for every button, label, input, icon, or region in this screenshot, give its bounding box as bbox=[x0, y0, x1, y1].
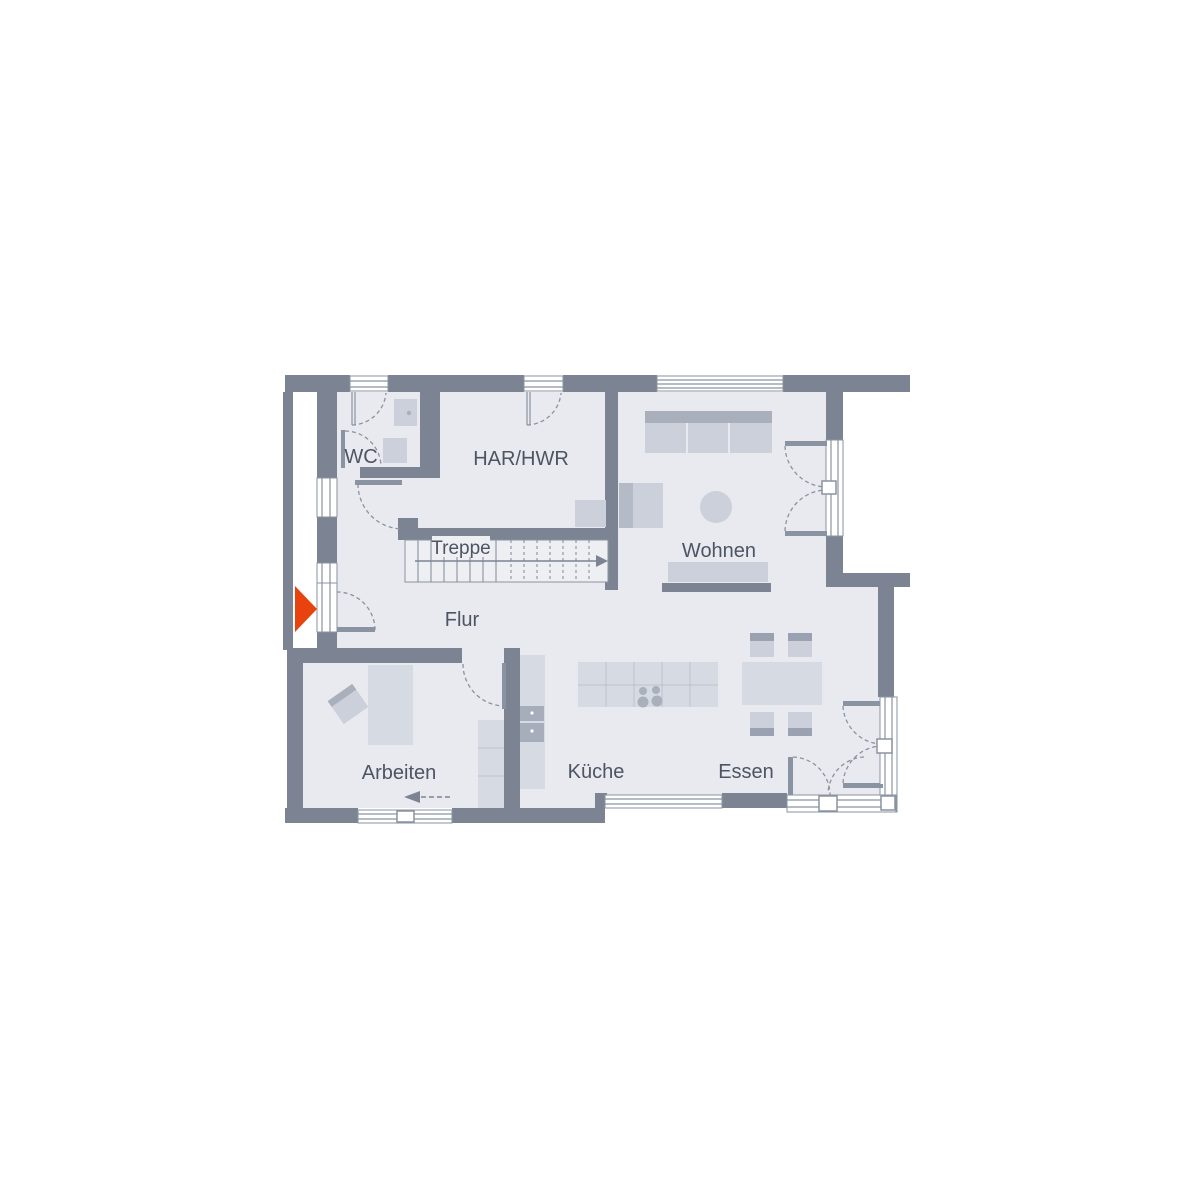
shelf-unit bbox=[478, 720, 504, 808]
door-handle bbox=[822, 481, 836, 494]
door-leaf bbox=[785, 531, 827, 536]
door-handle bbox=[877, 739, 892, 753]
wall-top-2 bbox=[388, 375, 524, 392]
wall-west-c bbox=[317, 632, 337, 650]
door-leaf bbox=[788, 757, 793, 795]
desk bbox=[368, 665, 413, 745]
label-essen: Essen bbox=[718, 761, 774, 783]
kitchen-tall-units bbox=[520, 655, 545, 789]
label-wc: WC bbox=[344, 446, 377, 468]
door-leaf bbox=[845, 784, 883, 788]
wall-wc-south bbox=[360, 467, 440, 478]
tv-panel bbox=[619, 483, 633, 528]
dining-chair bbox=[788, 633, 812, 657]
label-wohnen: Wohnen bbox=[682, 540, 756, 562]
tv-board bbox=[633, 483, 663, 528]
washing-machine bbox=[575, 500, 606, 527]
window-west-upper bbox=[317, 478, 337, 517]
basin-drain bbox=[407, 411, 411, 415]
label-treppe: Treppe bbox=[431, 538, 491, 559]
window-arbeiten-south bbox=[358, 810, 452, 823]
toilet bbox=[383, 438, 407, 463]
dining-chair bbox=[750, 712, 774, 736]
dining-chair bbox=[788, 712, 812, 736]
label-kueche: Küche bbox=[568, 761, 625, 783]
label-flur: Flur bbox=[445, 609, 480, 631]
label-har-hwr: HAR/HWR bbox=[473, 448, 569, 470]
oven-knob bbox=[530, 711, 533, 714]
label-arbeiten: Arbeiten bbox=[362, 762, 437, 784]
entrance-arrow-icon bbox=[295, 586, 317, 632]
coffee-table bbox=[700, 491, 732, 523]
wall-kueche-west bbox=[504, 648, 520, 823]
wall-west-a bbox=[317, 392, 337, 478]
wall-east-essen bbox=[878, 587, 894, 697]
floor-plan-page: WC HAR/HWR Treppe Wohnen Flur Arbeiten K… bbox=[0, 0, 1200, 1200]
corner-mullion bbox=[881, 796, 895, 810]
floor-plan: WC HAR/HWR Treppe Wohnen Flur Arbeiten K… bbox=[0, 0, 1200, 1200]
door-leaf bbox=[337, 627, 375, 632]
wall-arbeiten-north bbox=[287, 648, 462, 663]
wall-top-1 bbox=[285, 375, 350, 392]
wall-bottom-1 bbox=[285, 808, 358, 823]
washbasin bbox=[394, 399, 417, 426]
window-west-lower bbox=[317, 563, 337, 583]
wall-west-b bbox=[317, 517, 337, 563]
wall-wc-east bbox=[420, 392, 440, 478]
wall-wohnen-south-stub bbox=[662, 583, 771, 592]
dining-table bbox=[742, 662, 822, 705]
wall-east-wing bbox=[826, 573, 910, 587]
sideboard bbox=[668, 562, 768, 582]
window-kueche-south bbox=[605, 795, 722, 808]
wall-left-wing bbox=[283, 392, 293, 650]
wall-bottom-2 bbox=[452, 808, 605, 823]
window-wohnen-top bbox=[657, 376, 783, 391]
door-leaf bbox=[502, 663, 506, 709]
oven-knob bbox=[530, 729, 533, 732]
sofa-seat bbox=[645, 423, 772, 453]
wall-bottom-4 bbox=[722, 793, 787, 808]
sofa-back bbox=[645, 411, 772, 423]
wall-top-3 bbox=[563, 375, 657, 392]
door-leaf bbox=[355, 480, 402, 485]
floor-arbeiten-west bbox=[303, 650, 343, 808]
door-leaf bbox=[843, 701, 880, 706]
dining-chair bbox=[750, 633, 774, 657]
wall-east-wohnen-a bbox=[826, 392, 843, 443]
wall-east-wohnen-b bbox=[826, 533, 843, 573]
door-handle bbox=[819, 796, 837, 811]
window-handle bbox=[397, 811, 414, 822]
door-leaf bbox=[785, 441, 827, 446]
wall-arbeiten-west bbox=[287, 650, 303, 823]
wall-top-4 bbox=[783, 375, 910, 392]
